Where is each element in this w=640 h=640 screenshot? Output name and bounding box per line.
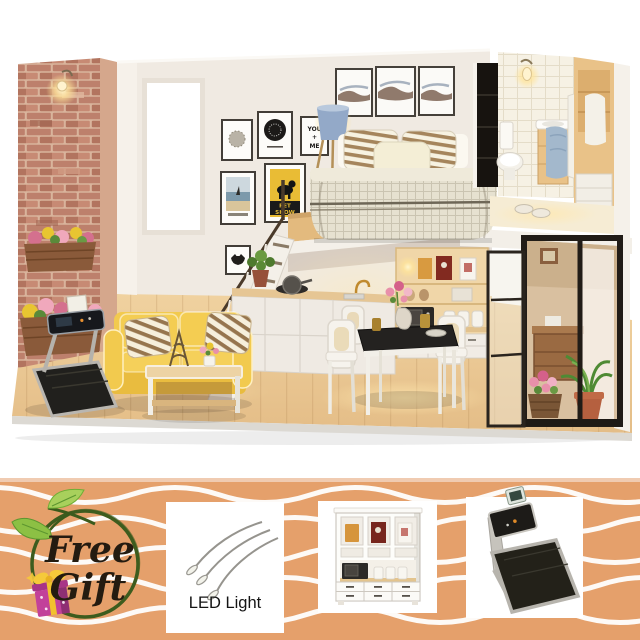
sofa xyxy=(104,312,252,394)
dollhouse-illustration: YOU + ME PET SHOW xyxy=(0,0,640,478)
balcony xyxy=(488,238,620,426)
gold-cup xyxy=(420,314,430,328)
slipper xyxy=(532,209,550,218)
living-room xyxy=(25,309,252,423)
svg-text:ME: ME xyxy=(309,143,319,150)
svg-text:PET: PET xyxy=(279,204,291,210)
coffee-table xyxy=(142,366,246,423)
hanging-towel xyxy=(585,93,606,145)
bathroom-wardrobe xyxy=(574,57,614,228)
dollhouse-photo: YOU + ME PET SHOW xyxy=(0,0,640,478)
balcony-side-glass xyxy=(488,252,524,426)
bedroom-dark-window xyxy=(473,63,498,188)
pantry-box xyxy=(418,258,432,279)
gold-cup xyxy=(372,318,381,331)
picture-frame-round-art xyxy=(222,120,252,160)
promo-banner: Free Gift LED Light xyxy=(0,478,640,640)
window xyxy=(142,78,205,235)
svg-text:+: + xyxy=(312,134,317,141)
badge-text-line1: Free xyxy=(44,529,135,571)
slipper xyxy=(515,205,533,214)
sink xyxy=(344,294,364,299)
flower-box-upper xyxy=(24,227,96,272)
product-image: YOU + ME PET SHOW xyxy=(0,0,640,640)
miniature-cabinet xyxy=(334,508,422,605)
canister xyxy=(472,311,483,327)
led-light-label: LED Light xyxy=(189,594,262,612)
gift-panel-treadmill xyxy=(466,485,583,618)
picture-frame-black-circle xyxy=(258,112,292,158)
cooking-pan xyxy=(283,276,301,294)
banner-top-strip xyxy=(0,478,640,482)
striped-sofa-pillow xyxy=(124,315,172,358)
wall-art-triptych xyxy=(336,67,454,116)
gift-panel-led-light: LED Light xyxy=(166,502,284,633)
picture-frame-seaside xyxy=(221,172,255,224)
banner-illustration: Free Gift LED Light xyxy=(0,478,640,640)
bathroom xyxy=(490,52,614,234)
picture-frame-bat xyxy=(226,246,250,274)
table-vase xyxy=(395,308,411,329)
badge-text-line2: Gift xyxy=(50,567,127,609)
quilt xyxy=(310,172,497,240)
panel-card xyxy=(166,502,284,633)
gift-panel-cabinet xyxy=(318,501,437,613)
